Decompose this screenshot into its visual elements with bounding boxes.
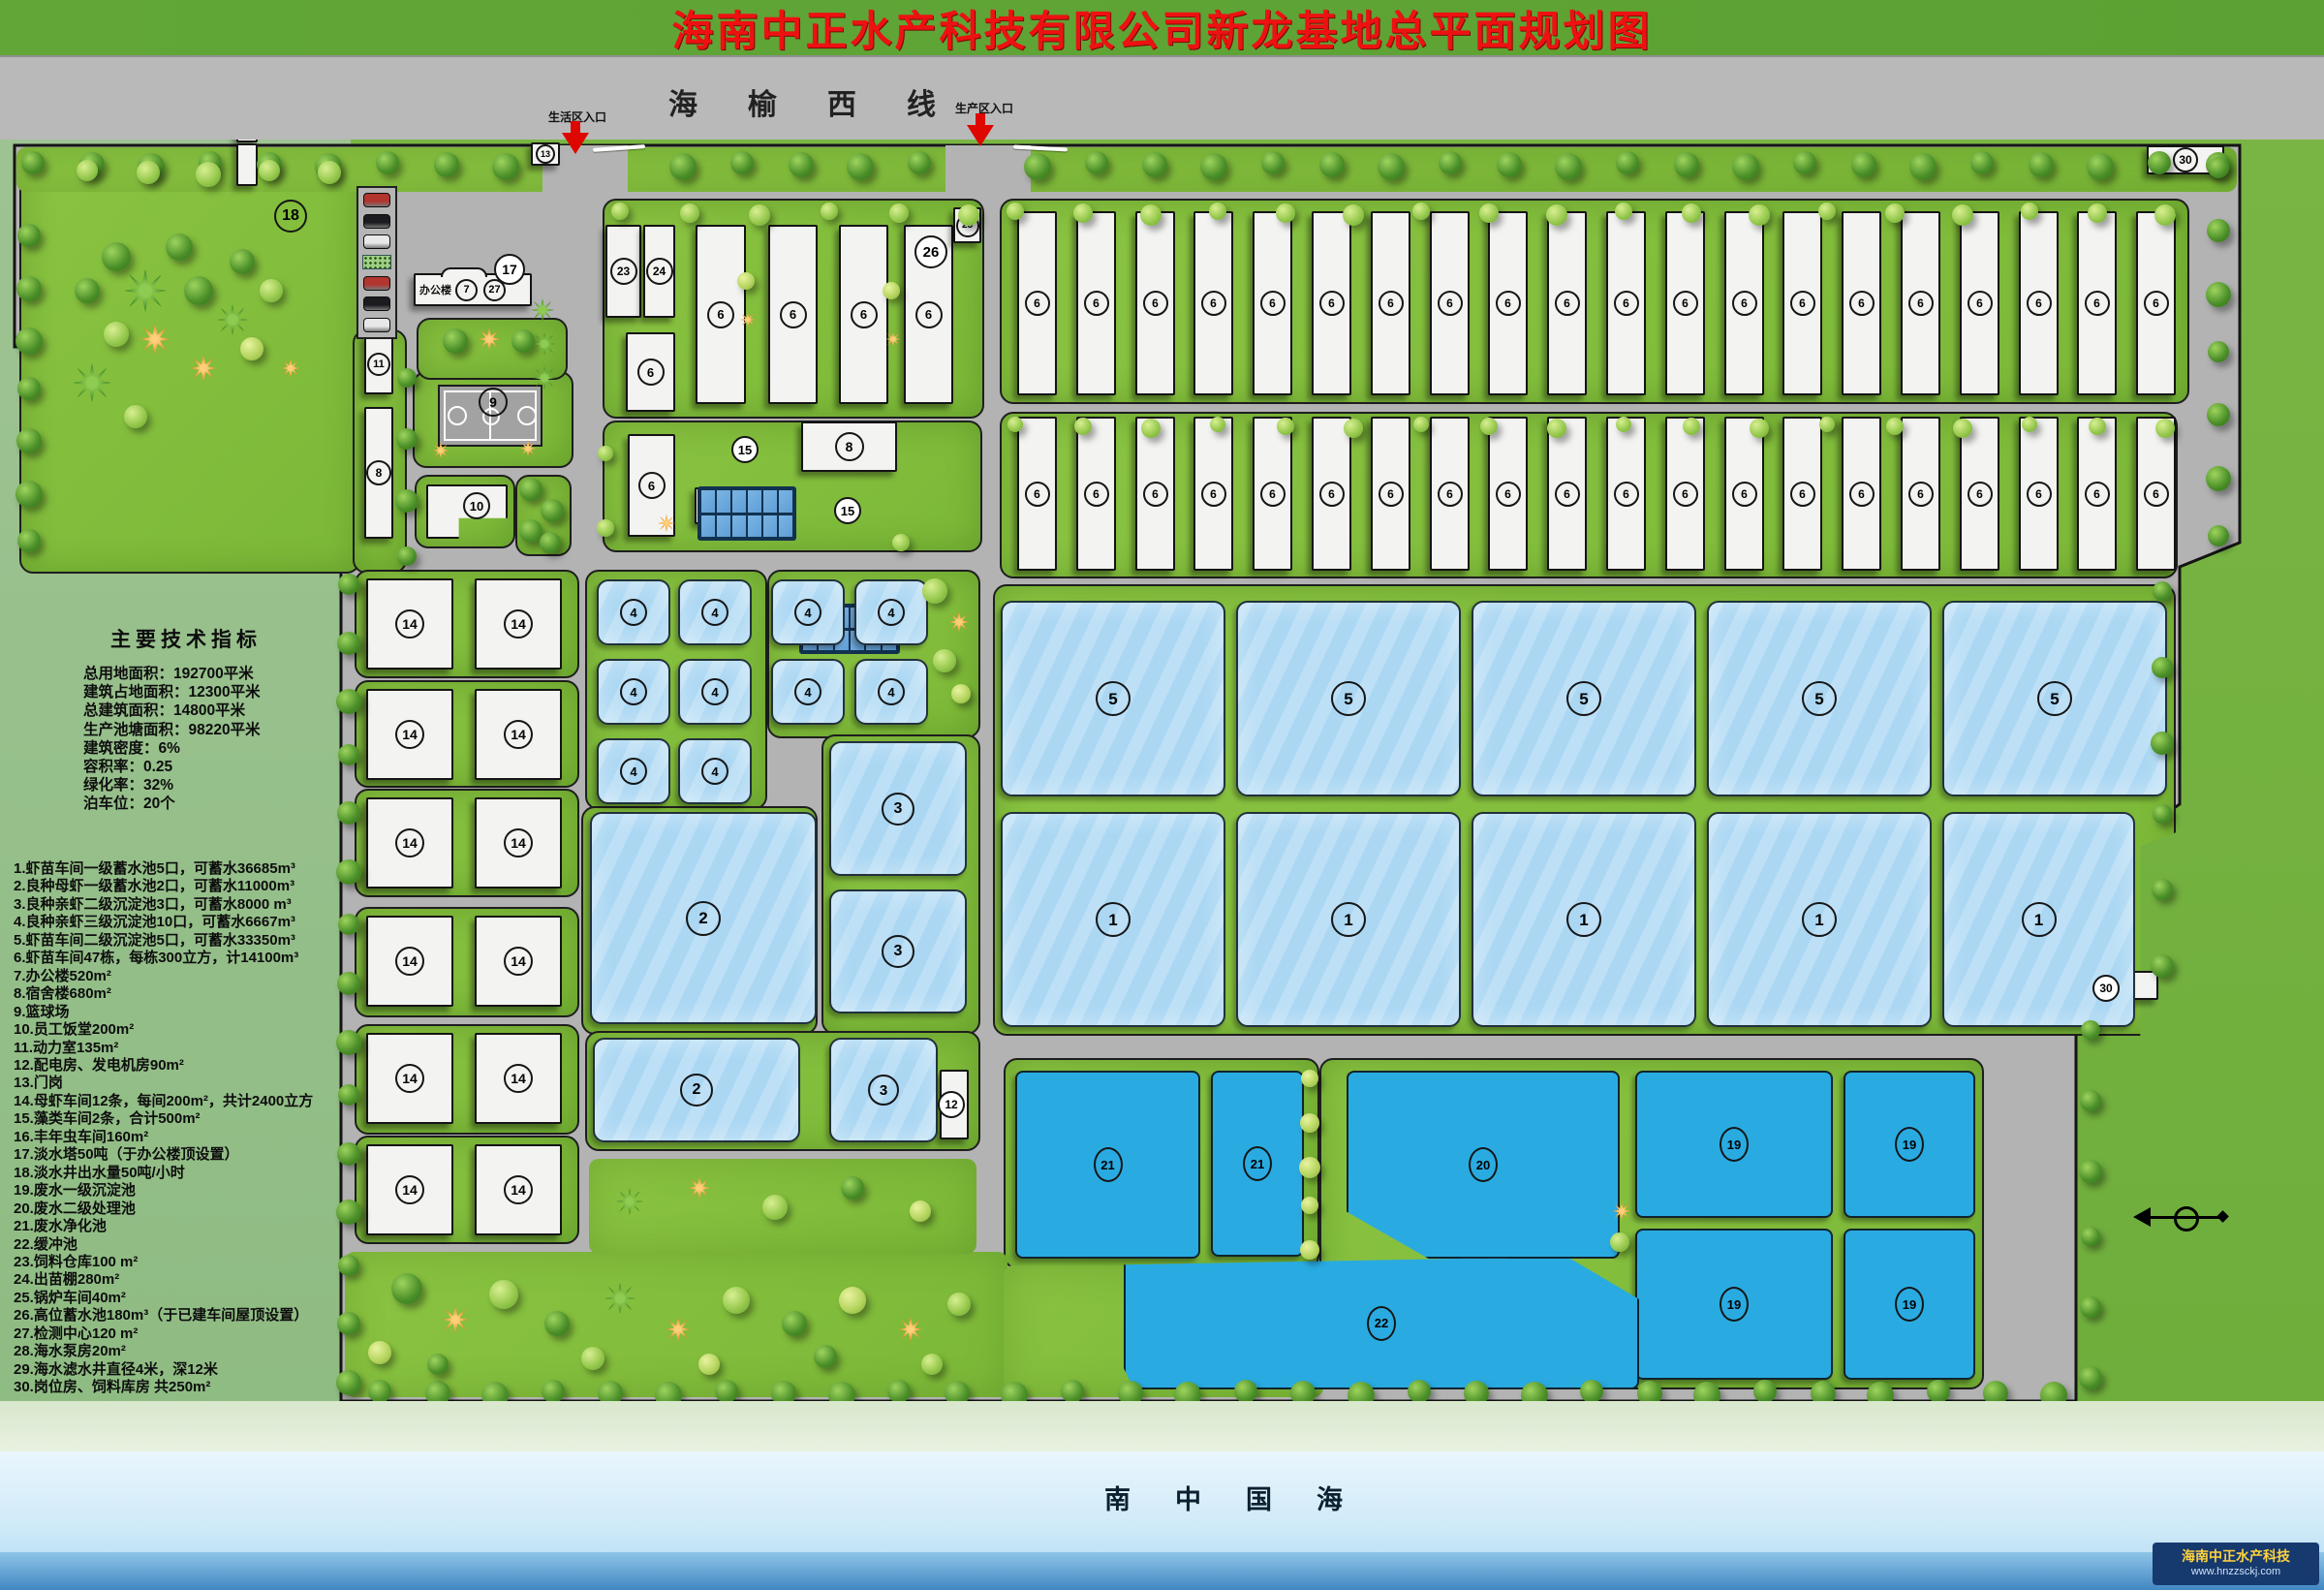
tree-icon bbox=[16, 276, 42, 301]
shrimp-workshop-strip: 6 bbox=[1547, 417, 1587, 571]
flower-burst-icon bbox=[658, 514, 675, 532]
tree-icon bbox=[1344, 419, 1363, 438]
marker-13: 13 bbox=[536, 144, 555, 164]
legend-item: 13.门岗 bbox=[14, 1075, 313, 1092]
marker-14: 14 bbox=[395, 609, 424, 639]
tree-icon bbox=[519, 478, 542, 501]
algae-pool-cell bbox=[717, 515, 730, 538]
mother-shrimp-workshop-building: 14 bbox=[366, 1144, 453, 1235]
pond-4: 4 bbox=[678, 659, 752, 725]
legend-item: 23.饲料仓库100 m² bbox=[14, 1254, 313, 1271]
tree-icon bbox=[1818, 203, 1836, 220]
tree-icon bbox=[1750, 419, 1769, 438]
flower-burst-icon bbox=[519, 440, 537, 457]
shrimp-workshop-strip: 6 bbox=[1253, 417, 1292, 571]
park-lawn bbox=[19, 150, 360, 574]
shrimp-workshop-strip: 6 bbox=[1782, 211, 1822, 395]
marker-30: 30 bbox=[2092, 975, 2120, 1002]
tree-icon bbox=[544, 1311, 570, 1336]
marker-12: 12 bbox=[938, 1091, 965, 1118]
master-plan-canvas: 1181323246666668162530666666666666666666… bbox=[0, 0, 2324, 1590]
highway-haiyu-west-line: 海榆西线 生活区入口 生产区入口 bbox=[0, 55, 2324, 140]
shrimp-workshop-strip: 6 bbox=[1312, 417, 1351, 571]
legend-item: 18.淡水井出水量50吨/小时 bbox=[14, 1165, 313, 1182]
mother-shrimp-workshop-building: 14 bbox=[366, 797, 453, 889]
tree-icon bbox=[951, 684, 971, 703]
shrimp-workshop-strip: 6 bbox=[1076, 211, 1116, 395]
marker-6: 6 bbox=[1968, 482, 1993, 507]
shrimp-workshop-strip: 6 bbox=[1842, 417, 1881, 571]
marker-7: 7 bbox=[455, 279, 478, 301]
pond-3: 3 bbox=[829, 741, 967, 876]
pond-4: 4 bbox=[678, 738, 752, 804]
pond-1: 1 bbox=[1707, 812, 1932, 1027]
shrimp-workshop-strip: 6 bbox=[1017, 417, 1057, 571]
marker-10: 10 bbox=[463, 492, 490, 519]
tree-icon bbox=[892, 534, 910, 551]
tree-icon bbox=[2207, 403, 2230, 426]
flower-burst-icon bbox=[1612, 1201, 1631, 1221]
marker-2: 2 bbox=[680, 1074, 713, 1107]
marker-21: 21 bbox=[1094, 1147, 1123, 1182]
pond-4: 4 bbox=[597, 659, 670, 725]
tree-icon bbox=[581, 1347, 604, 1370]
marker-6: 6 bbox=[638, 472, 666, 499]
workshop-row2-lawn bbox=[1000, 412, 2178, 578]
flower-burst-icon bbox=[948, 611, 970, 633]
tree-icon bbox=[2151, 732, 2174, 755]
tree-icon bbox=[1953, 419, 1972, 438]
marker-14: 14 bbox=[504, 947, 533, 976]
marker-6: 6 bbox=[851, 301, 878, 328]
marker-2: 2 bbox=[686, 901, 721, 936]
tree-icon bbox=[2206, 466, 2231, 491]
tree-icon bbox=[2155, 419, 2175, 438]
tree-icon bbox=[77, 160, 98, 181]
tree-icon bbox=[2152, 879, 2173, 900]
legend-item: 28.海水泵房20m² bbox=[14, 1343, 313, 1360]
shrimp-workshop-building: 6 bbox=[768, 225, 818, 404]
marker-6: 6 bbox=[1319, 291, 1345, 316]
legend-item: 10.员工饭堂200m² bbox=[14, 1021, 313, 1039]
shrimp-workshop-strip: 6 bbox=[1135, 417, 1175, 571]
tree-icon bbox=[196, 162, 221, 187]
marker-6: 6 bbox=[1201, 482, 1226, 507]
tree-icon bbox=[337, 632, 360, 655]
tech-indicators-title: 主要技术指标 bbox=[110, 624, 262, 653]
marker-6: 6 bbox=[1908, 482, 1934, 507]
legend-item: 3.良种亲虾二级沉淀池3口，可蓄水8000 m³ bbox=[14, 896, 313, 914]
marker-6: 6 bbox=[1790, 291, 1815, 316]
shrimp-workshop-strip: 6 bbox=[1371, 211, 1410, 395]
tree-icon bbox=[921, 1354, 943, 1375]
shrimp-workshop-strip: 6 bbox=[1253, 211, 1292, 395]
marker-1: 1 bbox=[1331, 902, 1366, 937]
pond-5: 5 bbox=[1472, 601, 1696, 796]
parking-strip bbox=[356, 186, 397, 339]
tree-icon bbox=[21, 151, 45, 174]
algae-pool-grid bbox=[697, 486, 796, 541]
mother-shrimp-workshop-building: 14 bbox=[366, 689, 453, 780]
tree-icon bbox=[1074, 418, 1092, 435]
tree-icon bbox=[17, 224, 41, 247]
tree-icon bbox=[240, 337, 263, 360]
tree-icon bbox=[337, 972, 360, 995]
marker-30: 30 bbox=[2173, 147, 2198, 172]
algae-pool-cell bbox=[701, 490, 715, 513]
shrimp-workshop-strip: 6 bbox=[2019, 417, 2059, 571]
marker-6: 6 bbox=[1555, 482, 1580, 507]
tree-icon bbox=[2080, 1090, 2101, 1111]
marker-6: 6 bbox=[707, 301, 734, 328]
marker-6: 6 bbox=[1968, 291, 1993, 316]
page-title: 海南中正水产科技有限公司新龙基地总平面规划图 bbox=[672, 0, 1653, 58]
sea-name-label: 南中国海 bbox=[1104, 1479, 1387, 1516]
legend-item: 26.高位蓄水池180m³（于已建车间屋顶设置） bbox=[14, 1307, 313, 1325]
tree-icon bbox=[368, 1380, 391, 1403]
seedling-shed-building: 24 bbox=[643, 225, 675, 318]
tree-icon bbox=[15, 327, 43, 355]
legend-item: 21.废水净化池 bbox=[14, 1218, 313, 1235]
marker-14: 14 bbox=[395, 1064, 424, 1093]
title-bar: 海南中正水产科技有限公司新龙基地总平面规划图 bbox=[0, 0, 2324, 55]
compass-arrowhead bbox=[2133, 1207, 2151, 1227]
pond-4: 4 bbox=[597, 738, 670, 804]
marker-15: 15 bbox=[834, 497, 861, 524]
tree-icon bbox=[789, 152, 814, 177]
tree-icon bbox=[730, 151, 754, 174]
pond-5: 5 bbox=[1001, 601, 1225, 796]
marker-1: 1 bbox=[2022, 902, 2057, 937]
mother-shrimp-workshop-building: 14 bbox=[366, 1033, 453, 1124]
tree-icon bbox=[540, 532, 561, 553]
workshop-row1-lawn bbox=[1000, 199, 2189, 404]
pond-1: 1 bbox=[1001, 812, 1225, 1027]
legend-item: 27.检测中心120 m² bbox=[14, 1325, 313, 1343]
shrimp-workshop-strip: 6 bbox=[1547, 211, 1587, 395]
tree-icon bbox=[1007, 203, 1024, 220]
tree-icon bbox=[541, 499, 564, 522]
pond-4: 4 bbox=[771, 579, 845, 645]
shrimp-workshop-strip: 6 bbox=[1665, 417, 1705, 571]
legend-item: 29.海水滤水井直径4米，深12米 bbox=[14, 1361, 313, 1379]
tech-indicator-line: 建筑占地面积：12300平米 bbox=[83, 683, 261, 701]
tree-icon bbox=[1885, 203, 1905, 223]
tree-icon bbox=[2208, 341, 2229, 362]
tree-icon bbox=[443, 328, 468, 354]
tree-icon bbox=[124, 405, 147, 428]
shrimp-workshop-building: 6 bbox=[839, 225, 888, 404]
treatment-pond-21: 21 bbox=[1015, 1071, 1200, 1259]
tree-icon bbox=[762, 1195, 788, 1220]
tree-icon bbox=[427, 1354, 449, 1375]
marker-14: 14 bbox=[504, 720, 533, 749]
marker-1: 1 bbox=[1802, 902, 1837, 937]
pond-4: 4 bbox=[854, 579, 928, 645]
tree-icon bbox=[841, 1176, 864, 1200]
road-name-label: 海榆西线 bbox=[668, 80, 986, 123]
flower-burst-icon bbox=[190, 355, 217, 382]
tree-icon bbox=[2152, 657, 2173, 678]
legend-item: 25.锅炉车间40m² bbox=[14, 1290, 313, 1307]
treatment-pond-21: 21 bbox=[1211, 1071, 1304, 1257]
flower-burst-icon bbox=[432, 442, 449, 459]
marker-6: 6 bbox=[1379, 291, 1404, 316]
treatment-pond-19: 19 bbox=[1844, 1071, 1975, 1218]
tree-icon bbox=[318, 161, 341, 184]
tree-icon bbox=[1480, 418, 1498, 435]
palm-tree-icon bbox=[533, 332, 556, 356]
tree-icon bbox=[395, 489, 418, 513]
tree-icon bbox=[1300, 1240, 1319, 1260]
mother-shrimp-workshop-building: 14 bbox=[366, 916, 453, 1007]
tree-icon bbox=[1546, 204, 1567, 226]
tree-icon bbox=[2208, 157, 2229, 178]
marker-18: 18 bbox=[274, 200, 307, 233]
marker-26: 26 bbox=[914, 235, 947, 268]
shrimp-workshop-strip: 6 bbox=[1724, 417, 1764, 571]
tree-icon bbox=[260, 279, 283, 302]
tree-icon bbox=[1085, 151, 1108, 174]
legend-item: 30.岗位房、饲料库房 共250m² bbox=[14, 1379, 313, 1396]
dormitory-building: 8 bbox=[364, 407, 393, 539]
marker-6: 6 bbox=[1260, 482, 1286, 507]
tree-icon bbox=[184, 276, 213, 305]
mother-shrimp-workshop-building: 14 bbox=[475, 1144, 562, 1235]
tree-icon bbox=[2029, 152, 2054, 177]
flower-burst-icon bbox=[898, 1317, 923, 1342]
production-entrance-gap bbox=[945, 145, 1031, 194]
marker-5: 5 bbox=[1096, 681, 1131, 716]
shrimp-workshop-strip: 6 bbox=[1076, 417, 1116, 571]
tree-icon bbox=[2081, 1227, 2100, 1246]
tree-icon bbox=[723, 1287, 750, 1314]
tree-icon bbox=[1073, 203, 1093, 223]
pond-4: 4 bbox=[771, 659, 845, 725]
tree-icon bbox=[1413, 417, 1429, 432]
tree-icon bbox=[737, 272, 755, 290]
tree-icon bbox=[1007, 417, 1023, 432]
marker-6: 6 bbox=[1379, 482, 1404, 507]
marker-6: 6 bbox=[2144, 482, 2169, 507]
gate-post-building: 13 bbox=[531, 142, 560, 166]
legend-item: 4.良种亲虾三级沉淀池10口，可蓄水6667m³ bbox=[14, 914, 313, 931]
marker-8: 8 bbox=[366, 460, 391, 485]
tech-indicator-line: 总用地面积：192700平米 bbox=[83, 665, 261, 683]
shrimp-workshop-strip: 6 bbox=[1488, 211, 1528, 395]
pond-4: 4 bbox=[678, 579, 752, 645]
marker-6: 6 bbox=[780, 301, 807, 328]
office-roof-bump bbox=[441, 267, 487, 277]
tree-icon bbox=[839, 1287, 866, 1314]
pond-4: 4 bbox=[597, 579, 670, 645]
marker-6: 6 bbox=[1555, 291, 1580, 316]
tree-icon bbox=[434, 152, 459, 177]
marker-6: 6 bbox=[1614, 482, 1639, 507]
tree-icon bbox=[1234, 1380, 1257, 1403]
pond-5: 5 bbox=[1942, 601, 2167, 796]
marker-24: 24 bbox=[646, 258, 673, 285]
flower-burst-icon bbox=[478, 327, 501, 351]
legend-item: 24.出苗棚280m² bbox=[14, 1271, 313, 1289]
algae-pool-cell bbox=[732, 490, 746, 513]
legend-item: 1.虾苗车间一级蓄水池5口，可蓄水36685m³ bbox=[14, 860, 313, 878]
treatment-pond-19: 19 bbox=[1635, 1229, 1833, 1380]
tree-icon bbox=[338, 1255, 359, 1276]
tree-icon bbox=[338, 744, 359, 765]
parked-car bbox=[363, 296, 390, 311]
office-label: 办公楼 bbox=[419, 282, 451, 297]
marker-3: 3 bbox=[882, 793, 914, 826]
marker-6: 6 bbox=[1790, 482, 1815, 507]
tree-icon bbox=[1952, 204, 1973, 226]
algae-pool-cell bbox=[748, 515, 761, 538]
tree-icon bbox=[933, 649, 956, 672]
treatment-pond-20: 20 bbox=[1347, 1071, 1620, 1259]
shrimp-workshop-strip: 6 bbox=[2136, 211, 2176, 395]
tree-icon bbox=[1886, 418, 1904, 435]
tree-icon bbox=[814, 1345, 837, 1368]
marker-14: 14 bbox=[504, 1064, 533, 1093]
tree-icon bbox=[847, 153, 874, 180]
marker-6: 6 bbox=[1496, 291, 1521, 316]
marker-15: 15 bbox=[731, 436, 759, 463]
garden-southwest bbox=[345, 1252, 1007, 1397]
marker-6: 6 bbox=[1084, 482, 1109, 507]
marker-6: 6 bbox=[1025, 482, 1050, 507]
marker-6: 6 bbox=[1614, 291, 1639, 316]
marker-6: 6 bbox=[2027, 291, 2052, 316]
marker-6: 6 bbox=[1260, 291, 1286, 316]
tree-icon bbox=[2154, 204, 2176, 226]
marker-5: 5 bbox=[2037, 681, 2072, 716]
tree-icon bbox=[376, 151, 399, 174]
tree-icon bbox=[958, 204, 979, 226]
marker-6: 6 bbox=[1084, 291, 1109, 316]
shore-strip bbox=[0, 1401, 2324, 1455]
marker-19: 19 bbox=[1895, 1287, 1924, 1322]
tree-icon bbox=[1749, 204, 1770, 226]
tree-icon bbox=[489, 1280, 518, 1309]
mother-shrimp-workshop-building: 14 bbox=[366, 578, 453, 670]
dormitory-annex-building: 8 bbox=[801, 421, 897, 472]
algae-pool-row bbox=[701, 490, 792, 513]
palm-tree-icon bbox=[73, 363, 111, 402]
marker-19: 19 bbox=[1895, 1127, 1924, 1162]
marker-14: 14 bbox=[395, 947, 424, 976]
marker-14: 14 bbox=[395, 1175, 424, 1204]
tree-icon bbox=[1753, 1380, 1777, 1403]
marker-6: 6 bbox=[1673, 482, 1698, 507]
tree-icon bbox=[1580, 1380, 1603, 1403]
palm-tree-icon bbox=[124, 269, 167, 312]
tree-icon bbox=[1909, 153, 1937, 180]
shrimp-workshop-strip: 6 bbox=[2077, 211, 2117, 395]
tree-icon bbox=[698, 1354, 720, 1375]
tree-icon bbox=[542, 1380, 565, 1403]
tree-icon bbox=[17, 529, 41, 552]
tree-icon bbox=[749, 204, 770, 226]
feed-warehouse-building: 23 bbox=[605, 225, 641, 318]
tree-icon bbox=[1343, 204, 1364, 226]
court-key-circle bbox=[517, 406, 537, 425]
pond-1: 1 bbox=[1236, 812, 1461, 1027]
marker-4: 4 bbox=[620, 678, 647, 705]
legend-item: 12.配电房、发电机房90m² bbox=[14, 1057, 313, 1075]
flower-burst-icon bbox=[442, 1306, 469, 1333]
tree-icon bbox=[1412, 203, 1430, 220]
shrimp-workshop-strip: 6 bbox=[1606, 211, 1646, 395]
tree-icon bbox=[397, 546, 417, 566]
tech-indicators-list: 总用地面积：192700平米建筑占地面积：12300平米总建筑面积：14800平… bbox=[83, 665, 261, 814]
marker-19: 19 bbox=[1720, 1287, 1749, 1322]
palm-tree-icon bbox=[217, 304, 248, 335]
tree-icon bbox=[336, 1030, 361, 1055]
tree-icon bbox=[2079, 1160, 2102, 1183]
grass-paver bbox=[362, 255, 391, 269]
tree-icon bbox=[2080, 1296, 2101, 1318]
marker-19: 19 bbox=[1720, 1127, 1749, 1162]
algae-pool-cell bbox=[763, 515, 777, 538]
facility-legend-list: 1.虾苗车间一级蓄水池5口，可蓄水36685m³2.良种母虾一级蓄水池2口，可蓄… bbox=[14, 860, 313, 1397]
flower-burst-icon bbox=[740, 312, 756, 327]
marker-4: 4 bbox=[701, 758, 728, 785]
marker-14: 14 bbox=[504, 609, 533, 639]
mother-shrimp-workshop-building: 14 bbox=[475, 689, 562, 780]
tree-icon bbox=[104, 322, 129, 347]
palm-tree-icon bbox=[531, 298, 554, 322]
tree-icon bbox=[680, 203, 699, 223]
tree-icon bbox=[908, 151, 931, 174]
flower-burst-icon bbox=[281, 359, 300, 378]
shrimp-workshop-strip: 6 bbox=[1724, 211, 1764, 395]
legend-item: 6.虾苗车间47栋，每栋300立方，计14100m³ bbox=[14, 950, 313, 967]
marker-4: 4 bbox=[794, 678, 821, 705]
algae-pool-cell bbox=[779, 490, 792, 513]
marker-21: 21 bbox=[1243, 1146, 1272, 1181]
marker-9: 9 bbox=[479, 388, 508, 417]
parked-car bbox=[363, 318, 390, 332]
tree-icon bbox=[2151, 954, 2174, 978]
shrimp-workshop-strip: 6 bbox=[1606, 417, 1646, 571]
parked-car bbox=[363, 276, 390, 291]
pond-1: 1 bbox=[1472, 812, 1696, 1027]
marker-6: 6 bbox=[2085, 291, 2110, 316]
legend-item: 5.虾苗车间二级沉淀池5口，可蓄水33350m³ bbox=[14, 932, 313, 950]
tree-icon bbox=[887, 1380, 911, 1403]
tree-icon bbox=[2079, 1366, 2102, 1389]
pond-2: 2 bbox=[593, 1038, 800, 1142]
marker-23: 23 bbox=[610, 258, 637, 285]
marker-5: 5 bbox=[1331, 681, 1366, 716]
shrimp-workshop-strip: 6 bbox=[1842, 211, 1881, 395]
legend-item: 16.丰年虫车间160m² bbox=[14, 1129, 313, 1146]
shrimp-workshop-strip: 6 bbox=[1371, 417, 1410, 571]
logo-website: www.hnzzsckj.com bbox=[2191, 1566, 2280, 1579]
tree-icon bbox=[338, 1084, 359, 1106]
plan-items-layer: 1181323246666668162530666666666666666666… bbox=[0, 0, 2324, 1590]
marker-6: 6 bbox=[2027, 482, 2052, 507]
flower-burst-icon bbox=[688, 1176, 711, 1200]
shrimp-workshop-strip: 6 bbox=[2136, 417, 2176, 571]
tree-icon bbox=[16, 428, 42, 453]
legend-item: 22.缓冲池 bbox=[14, 1236, 313, 1254]
shrimp-workshop-strip: 6 bbox=[1312, 211, 1351, 395]
tree-icon bbox=[1299, 1157, 1320, 1178]
tech-indicator-line: 容积率：0.25 bbox=[83, 758, 261, 776]
tree-icon bbox=[2081, 1020, 2100, 1040]
marker-14: 14 bbox=[504, 828, 533, 857]
